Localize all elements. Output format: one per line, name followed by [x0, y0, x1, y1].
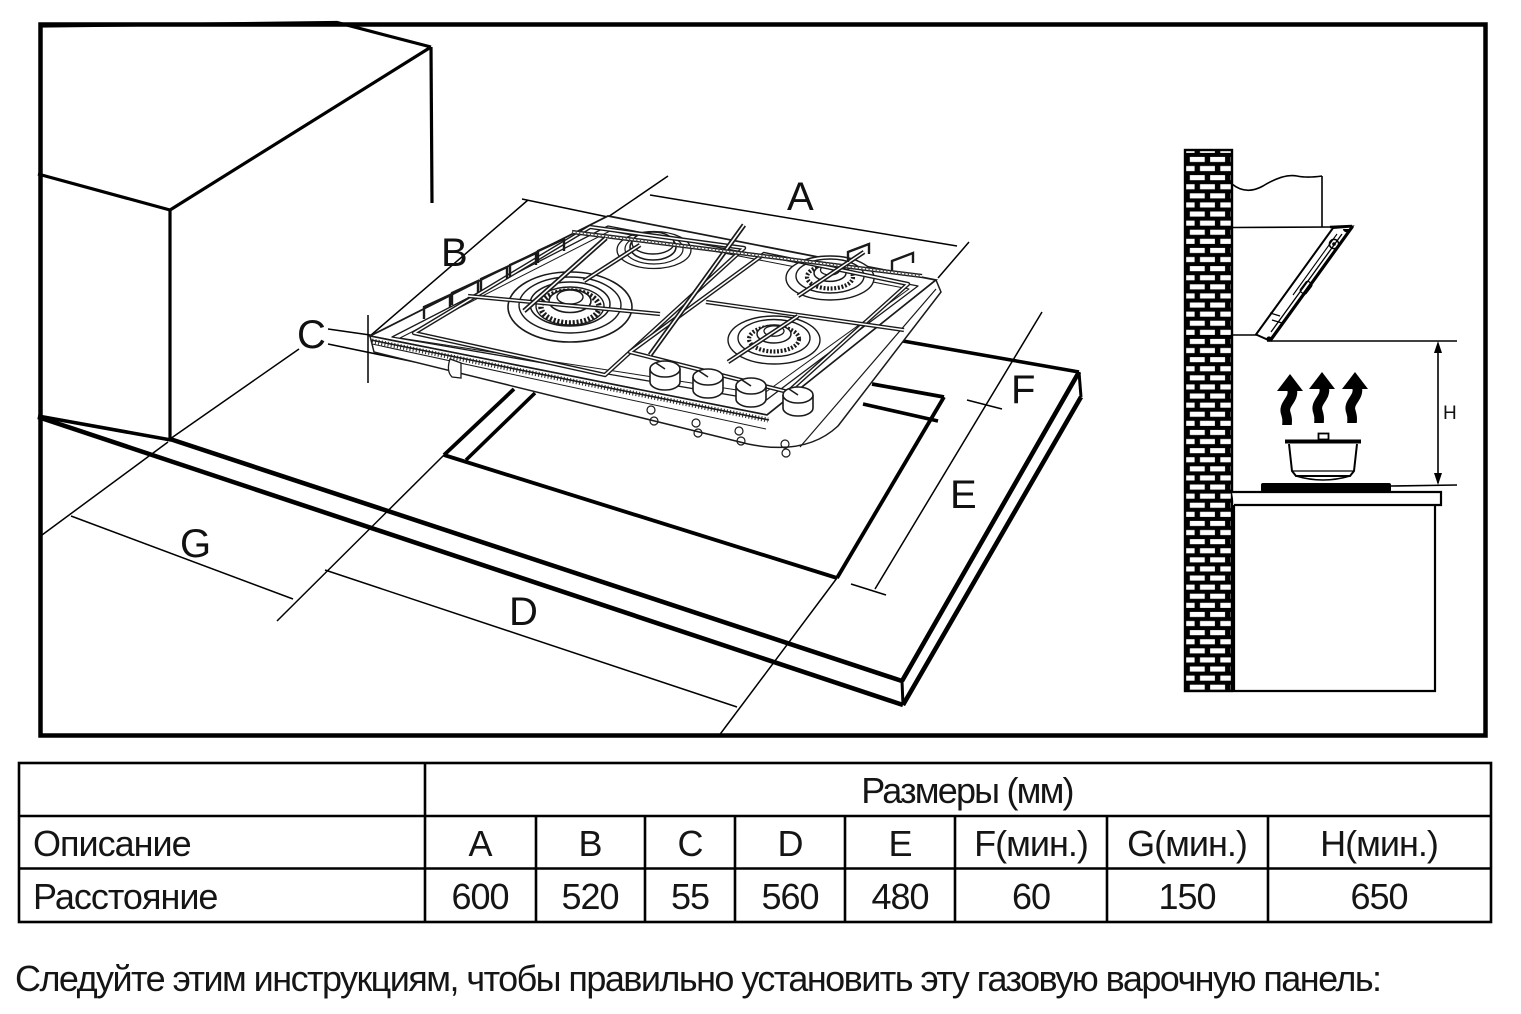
- svg-text:650: 650: [1350, 876, 1407, 917]
- svg-text:A: A: [468, 823, 492, 864]
- svg-text:520: 520: [561, 876, 618, 917]
- svg-text:D: D: [778, 823, 803, 864]
- svg-text:480: 480: [871, 876, 928, 917]
- svg-text:60: 60: [1012, 876, 1050, 917]
- svg-text:150: 150: [1158, 876, 1215, 917]
- svg-text:Расстояние: Расстояние: [33, 876, 217, 917]
- svg-text:55: 55: [671, 876, 709, 917]
- svg-text:E: E: [888, 823, 911, 864]
- svg-text:F: F: [1011, 368, 1035, 412]
- svg-text:C: C: [678, 823, 703, 864]
- svg-text:D: D: [509, 590, 538, 634]
- svg-text:B: B: [441, 231, 468, 275]
- svg-text:H(мин.): H(мин.): [1320, 823, 1438, 864]
- svg-text:E: E: [950, 473, 977, 517]
- svg-text:A: A: [787, 175, 814, 219]
- svg-text:C: C: [297, 313, 326, 357]
- svg-text:Описание: Описание: [33, 823, 191, 864]
- svg-text:G: G: [180, 522, 211, 566]
- svg-text:560: 560: [761, 876, 818, 917]
- svg-text:F(мин.): F(мин.): [974, 823, 1088, 864]
- svg-text:Размеры (мм): Размеры (мм): [861, 770, 1073, 811]
- svg-text:Следуйте этим инструкциям, что: Следуйте этим инструкциям, чтобы правиль…: [15, 958, 1381, 999]
- svg-text:G(мин.): G(мин.): [1127, 823, 1247, 864]
- svg-text:600: 600: [451, 876, 508, 917]
- svg-text:B: B: [578, 823, 601, 864]
- svg-text:H: H: [1443, 403, 1457, 424]
